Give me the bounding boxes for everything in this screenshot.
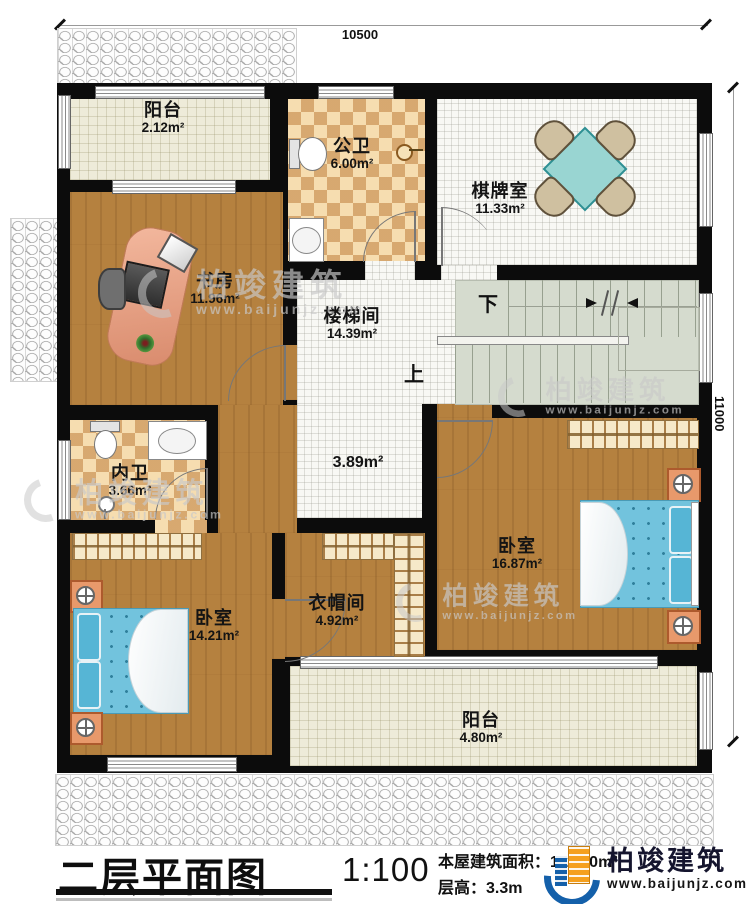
logo-building-blue xyxy=(555,856,567,886)
stair-direction-arrow xyxy=(586,298,597,308)
floor-height-line: 层高：3.3m xyxy=(438,874,522,898)
room-label-chess-room: 棋牌室 11.33m² xyxy=(440,181,560,216)
nightstand xyxy=(667,610,701,644)
logo-building-orange xyxy=(568,846,590,884)
door-opening xyxy=(155,520,207,533)
door-opening xyxy=(441,265,497,280)
room-area: 14.39m² xyxy=(292,326,412,341)
sink-basin-icon xyxy=(292,227,321,254)
wardrobe-cloakroom-side xyxy=(394,533,424,657)
stair-rail-outline xyxy=(618,307,700,371)
door-opening xyxy=(365,261,415,280)
window-bedroom-left-bottom xyxy=(107,757,237,772)
stair-direction-arrow xyxy=(627,298,638,308)
room-name: 公卫 xyxy=(292,136,412,156)
sink-basin-icon xyxy=(158,428,196,454)
room-name: 阳台 xyxy=(103,100,223,120)
title-underline xyxy=(56,889,332,895)
room-label-cloakroom: 衣帽间 4.92m² xyxy=(277,593,397,628)
room-label-stairwell: 楼梯间 14.39m² xyxy=(292,306,412,341)
pillow xyxy=(77,613,101,661)
toilet-icon xyxy=(94,430,117,459)
wardrobe-bedroom-left xyxy=(72,533,202,560)
brand-url: www.baijunjz.com xyxy=(607,876,748,892)
room-label-study: 书房 11.96m² xyxy=(155,271,275,306)
room-name: 衣帽间 xyxy=(277,593,397,613)
room-name: 卧室 xyxy=(457,536,577,556)
pillow xyxy=(669,556,693,604)
headboard xyxy=(691,502,699,606)
window-public-bath xyxy=(318,86,394,99)
sliding-door-balcony-top xyxy=(112,180,236,194)
room-label-balcony-bottom: 阳台 4.80m² xyxy=(421,710,541,745)
window-balcony-left xyxy=(58,95,71,169)
room-name: 楼梯间 xyxy=(292,306,412,326)
room-name: 内卫 xyxy=(70,463,190,483)
room-label-balcony-top: 阳台 2.12m² xyxy=(103,100,223,135)
lamp-icon xyxy=(76,718,95,737)
dimension-right-value: 11000 xyxy=(712,396,727,431)
lamp-icon xyxy=(673,474,693,494)
pillow xyxy=(669,506,693,554)
window-balcony-bottom-right xyxy=(699,672,713,750)
window-stair-right xyxy=(699,293,713,383)
room-label-inner-bath: 内卫 3.66m² xyxy=(70,463,190,498)
brand-name: 柏竣建筑 xyxy=(607,846,748,876)
stair-landing-rail xyxy=(437,336,629,345)
room-area: 3.89m² xyxy=(298,455,418,470)
floor-height-label: 层高： xyxy=(438,880,486,897)
dimension-top-value: 10500 xyxy=(330,27,390,42)
door-opening xyxy=(437,404,492,418)
room-area: 11.33m² xyxy=(440,201,560,216)
plan-scale: 1:100 xyxy=(342,851,430,889)
roof-tiles-bottom xyxy=(55,774,714,846)
floor-height-value: 3.3m xyxy=(486,880,522,897)
window-balcony-top xyxy=(95,86,265,99)
roof-tiles-left xyxy=(10,218,59,382)
room-area: 3.66m² xyxy=(70,483,190,498)
brand-logo-icon xyxy=(543,842,601,900)
title-underline-light xyxy=(56,898,332,901)
wardrobe-bedroom-right xyxy=(567,420,699,449)
room-area: 14.21m² xyxy=(154,628,274,643)
room-area: 4.80m² xyxy=(421,730,541,745)
room-name: 卧室 xyxy=(154,608,274,628)
room-area: 11.96m² xyxy=(155,291,275,306)
room-area: 16.87m² xyxy=(457,556,577,571)
stair-up-label: 上 xyxy=(404,358,424,387)
room-name: 棋牌室 xyxy=(440,181,560,201)
room-area: 6.00m² xyxy=(292,156,412,171)
room-label-bedroom-left: 卧室 14.21m² xyxy=(154,608,274,643)
pillow xyxy=(77,661,101,709)
lamp-icon xyxy=(673,616,693,636)
room-name: 书房 xyxy=(155,271,275,291)
floor-drain-stem xyxy=(104,509,106,519)
room-label-public-bath: 公卫 6.00m² xyxy=(292,136,412,171)
desk-chair xyxy=(98,268,126,310)
room-stairwell-hall-floor xyxy=(297,280,455,404)
nightstand xyxy=(667,468,701,502)
room-area: 4.92m² xyxy=(277,613,397,628)
room-name: 阳台 xyxy=(421,710,541,730)
dimension-line-right xyxy=(733,88,734,743)
nightstand xyxy=(70,712,103,745)
room-label-bedroom-right: 卧室 16.87m² xyxy=(457,536,577,571)
building-area-label: 本屋建筑面积： xyxy=(438,854,550,871)
window-chess-right xyxy=(699,133,713,227)
floor-plan-canvas: 10500 11000 下 上 xyxy=(0,0,750,904)
corridor-floor xyxy=(218,405,297,533)
room-label-hall: 3.89m² xyxy=(298,455,418,470)
floor-drain-icon xyxy=(98,496,115,513)
wardrobe-cloakroom-top xyxy=(322,533,394,560)
stair-down-label: 下 xyxy=(478,288,498,317)
roof-tiles-top xyxy=(57,28,297,87)
stair-flight-lower xyxy=(455,342,632,403)
lamp-icon xyxy=(76,586,95,605)
room-area: 2.12m² xyxy=(103,120,223,135)
dimension-line-top xyxy=(60,25,708,26)
brand-block: 柏竣建筑 www.baijunjz.com xyxy=(607,846,748,892)
sliding-door-balcony-bottom xyxy=(300,656,658,669)
